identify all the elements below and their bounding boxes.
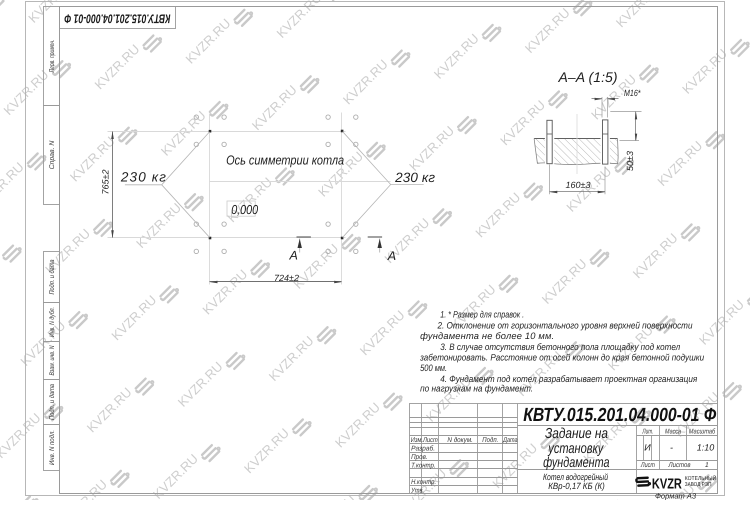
svg-text:КОТЕЛЬНЫЙ: КОТЕЛЬНЫЙ	[685, 474, 716, 482]
svg-text:N докум.: N докум.	[447, 436, 473, 444]
svg-text:50±3: 50±3	[625, 151, 635, 171]
svg-text:Пров.: Пров.	[411, 454, 428, 461]
svg-text:по нагрузкам на фундамент.: по нагрузкам на фундамент.	[420, 383, 533, 393]
svg-text:Лист: Лист	[640, 462, 655, 469]
svg-text:М16*: М16*	[624, 88, 641, 98]
svg-text:Утв.: Утв.	[410, 488, 424, 495]
svg-text:Масштаб: Масштаб	[689, 428, 716, 436]
svg-text:Т.контр.: Т.контр.	[411, 462, 436, 469]
svg-text:Перв. примен.: Перв. примен.	[49, 39, 56, 72]
svg-text:фундамента: фундамента	[543, 455, 609, 471]
svg-text:Дата: Дата	[502, 437, 517, 444]
svg-text:Лит.: Лит.	[642, 429, 654, 436]
svg-text:1. * Размер для справок .: 1. * Размер для справок .	[440, 310, 524, 320]
svg-text:И: И	[644, 443, 651, 453]
svg-text:КВТУ.015.201.04.000-01 Ф: КВТУ.015.201.04.000-01 Ф	[523, 405, 716, 426]
svg-text:ЗАВОД РЭП: ЗАВОД РЭП	[685, 482, 712, 488]
svg-text:Задание на: Задание на	[545, 426, 608, 442]
svg-text:500 мм.: 500 мм.	[420, 363, 447, 373]
svg-text:Масса: Масса	[665, 429, 681, 436]
svg-text:765±2: 765±2	[101, 170, 111, 195]
svg-text:Н.контр.: Н.контр.	[411, 479, 436, 486]
svg-text:фундамента не более 10 мм.: фундамента не более 10 мм.	[420, 331, 554, 341]
svg-text:забетонировать. Расстояние от: забетонировать. Расстояние от осей колон…	[419, 353, 704, 363]
svg-text:Взам. инв. N: Взам. инв. N	[49, 345, 56, 375]
svg-text:KVZR: KVZR	[652, 477, 682, 493]
svg-text:Подп. и дата: Подп. и дата	[49, 259, 56, 294]
svg-text:3. В случае отсутствия бетонно: 3. В случае отсутствия бетонного пола пл…	[440, 342, 681, 352]
svg-text:A–A (1:5): A–A (1:5)	[558, 69, 618, 85]
svg-text:A: A	[387, 249, 396, 263]
svg-text:724±2: 724±2	[274, 273, 299, 283]
svg-text:A: A	[289, 249, 298, 263]
svg-text:КВр-0,17 КБ (К): КВр-0,17 КБ (К)	[548, 481, 605, 491]
svg-text:Формат А3: Формат А3	[655, 492, 697, 501]
svg-text:2. Отклонение от горизонтально: 2. Отклонение от горизонтального уровня …	[437, 321, 693, 331]
svg-text:КВТУ.015.201.04.000-01 Ф: КВТУ.015.201.04.000-01 Ф	[64, 11, 170, 25]
svg-text:0,000: 0,000	[231, 202, 259, 217]
svg-text:230 кг: 230 кг	[120, 169, 166, 184]
svg-text:Ось симметрии котла: Ось симметрии котла	[226, 153, 344, 168]
svg-text:Листов: Листов	[668, 462, 691, 469]
svg-text:Инв. N дубл.: Инв. N дубл.	[48, 307, 56, 337]
svg-text:Разраб.: Разраб.	[411, 445, 435, 453]
svg-text:Подп.: Подп.	[482, 436, 498, 444]
svg-text:Справ. N: Справ. N	[49, 141, 56, 170]
svg-text:Подп. и дата: Подп. и дата	[49, 384, 56, 420]
svg-text:160±3: 160±3	[566, 180, 591, 190]
svg-text:Инв. N подл.: Инв. N подл.	[49, 430, 56, 465]
svg-text:-: -	[670, 443, 673, 453]
svg-text:1: 1	[705, 462, 709, 469]
svg-text:Изм.Лист: Изм.Лист	[411, 437, 438, 444]
svg-text:1:10: 1:10	[697, 443, 715, 453]
svg-text:230 кг: 230 кг	[394, 170, 435, 185]
